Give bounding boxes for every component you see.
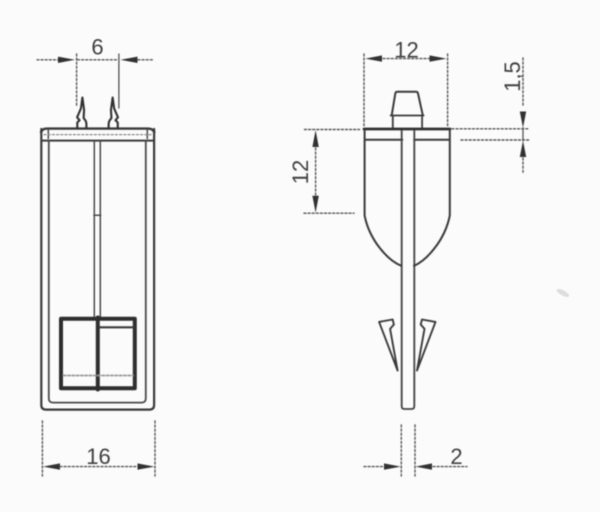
svg-text:2: 2	[450, 444, 462, 469]
svg-text:1,5: 1,5	[500, 61, 525, 92]
svg-text:16: 16	[86, 444, 110, 469]
svg-text:12: 12	[288, 160, 313, 184]
svg-text:6: 6	[91, 35, 103, 60]
